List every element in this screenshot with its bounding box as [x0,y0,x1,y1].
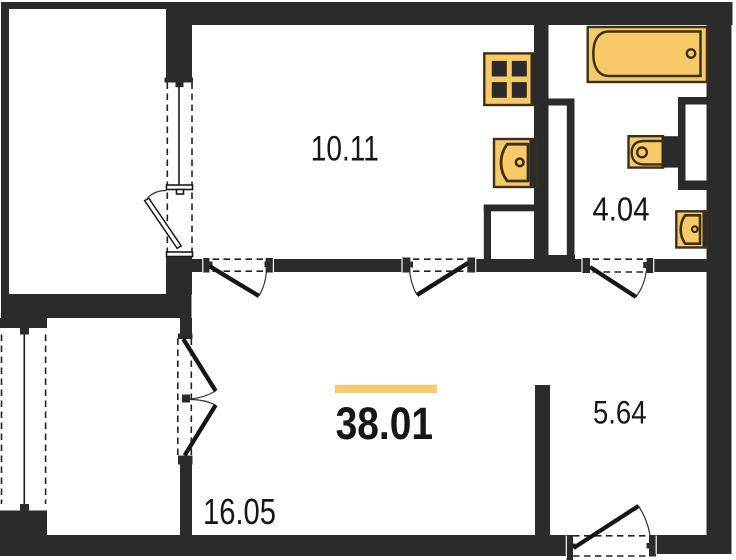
svg-text:16.05: 16.05 [203,491,276,532]
svg-text:38.01: 38.01 [336,398,434,449]
svg-text:5.64: 5.64 [593,393,647,430]
svg-text:10.11: 10.11 [311,129,379,168]
svg-text:4.04: 4.04 [593,191,650,228]
